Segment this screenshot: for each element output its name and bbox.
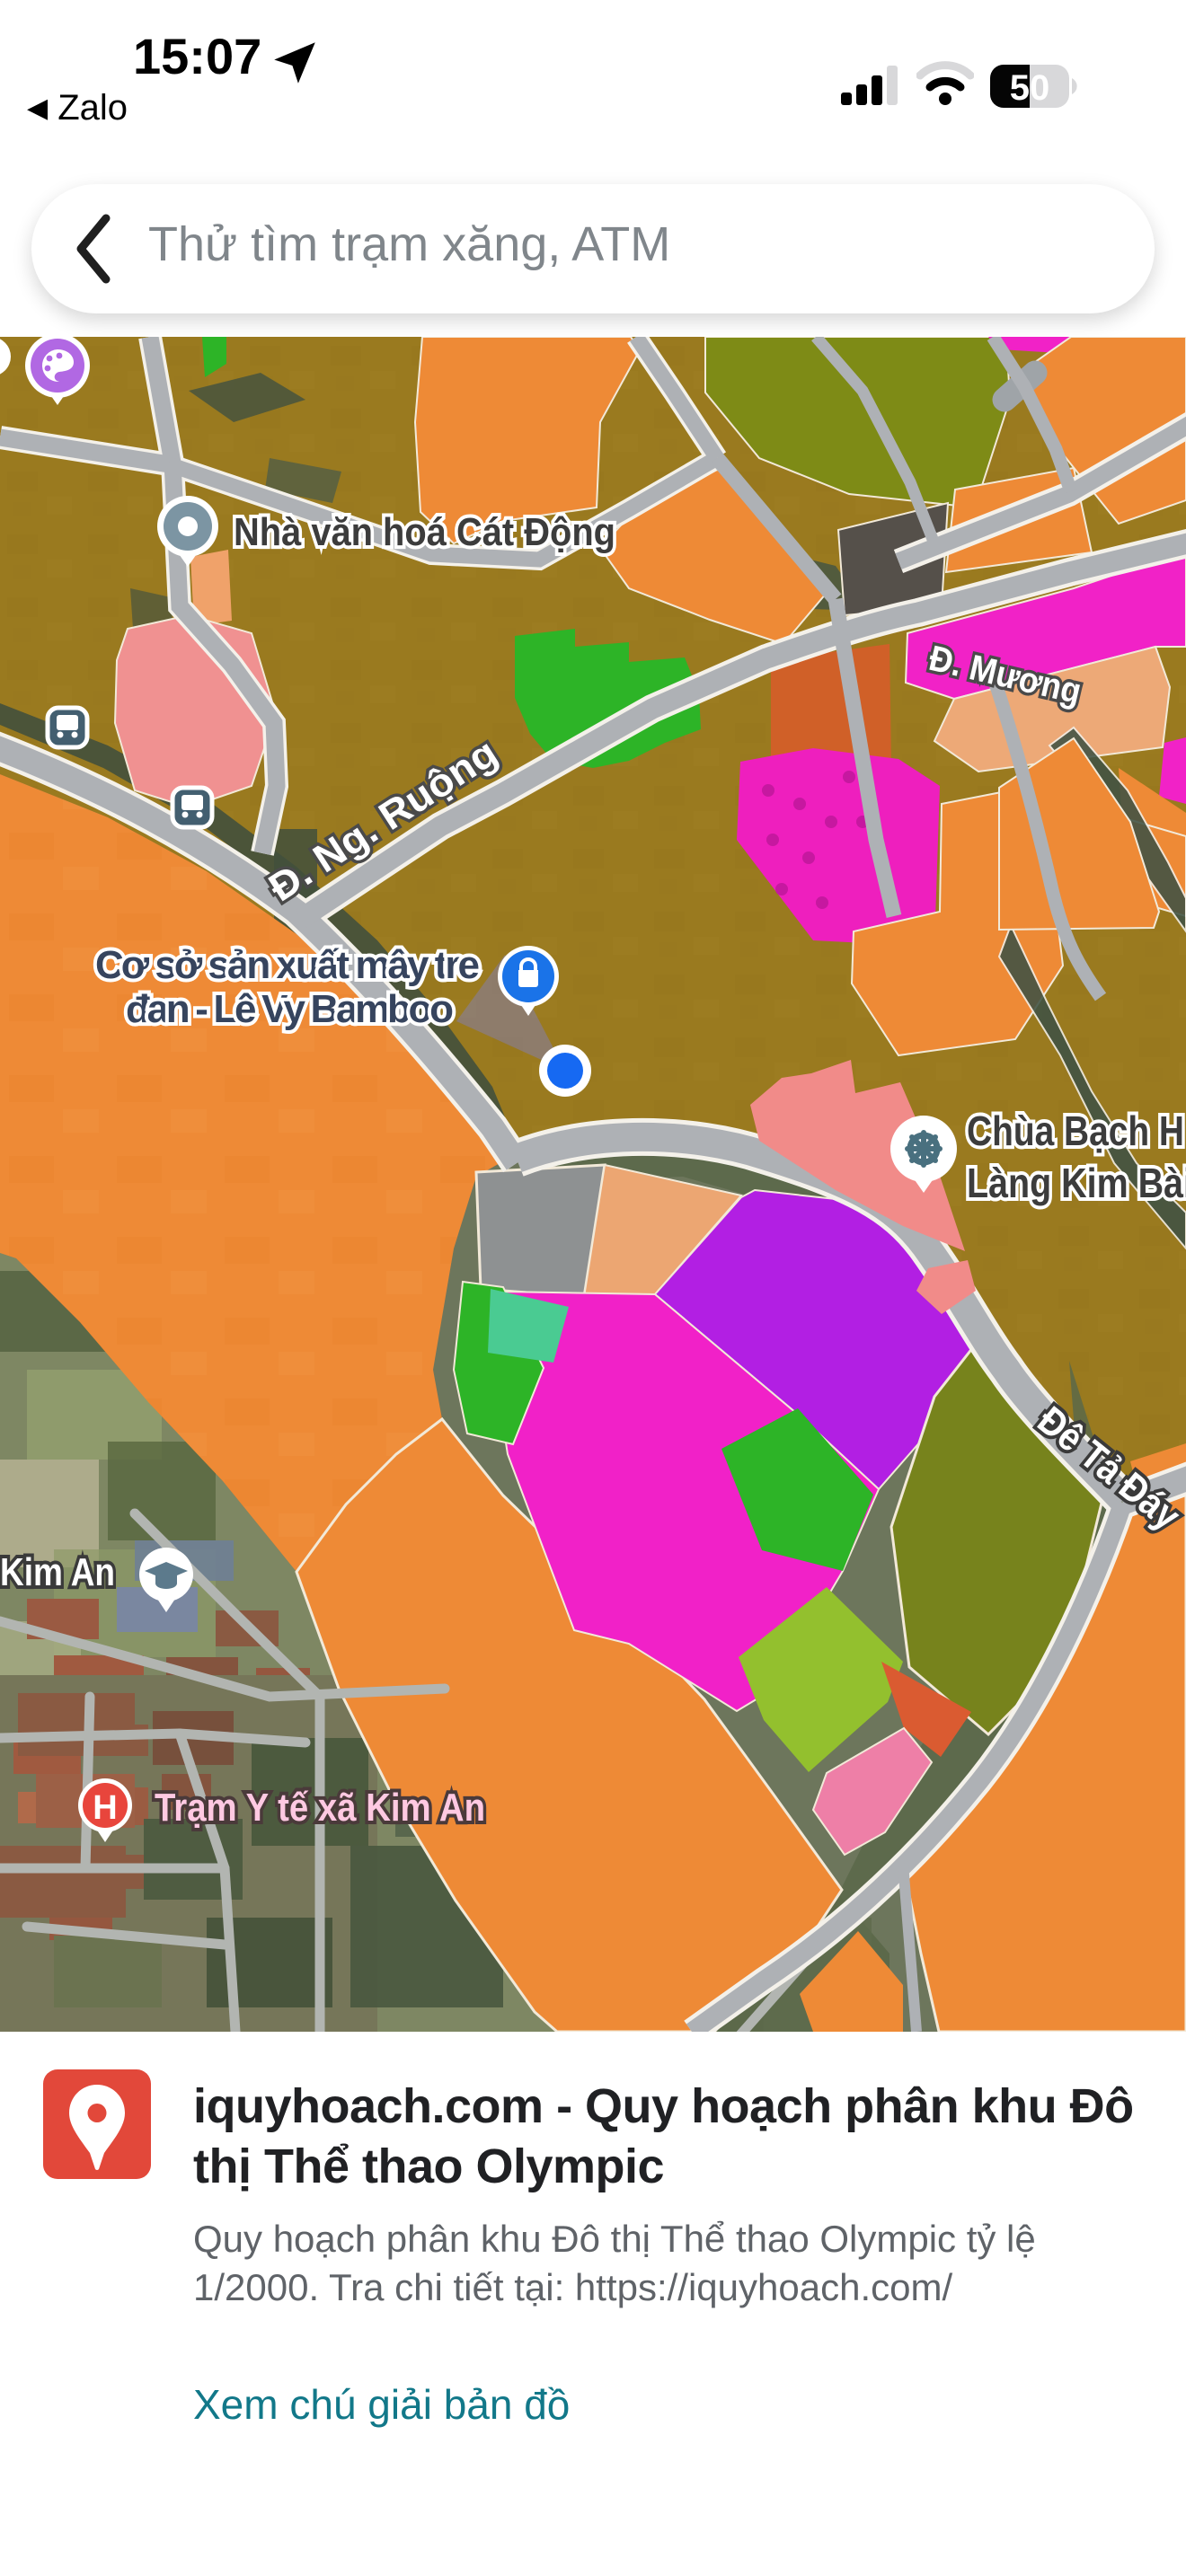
svg-text:Kim An: Kim An [0,1550,115,1594]
svg-text:50: 50 [1010,68,1050,108]
svg-text:Trạm Y tế xã Kim An: Trạm Y tế xã Kim An [155,1786,485,1830]
svg-text:Chùa Bạch H: Chùa Bạch H [967,1107,1184,1154]
svg-text:Nhà văn hoá Cát Động: Nhà văn hoá Cát Động [234,510,615,554]
svg-text:Cơ sở sản xuất mây tre: Cơ sở sản xuất mây tre [95,943,480,987]
svg-text:Làng Kim Bài: Làng Kim Bài [967,1160,1186,1206]
svg-text:H: H [93,1789,117,1827]
svg-text:đan - Lê Vy Bamboo: đan - Lê Vy Bamboo [126,987,454,1031]
